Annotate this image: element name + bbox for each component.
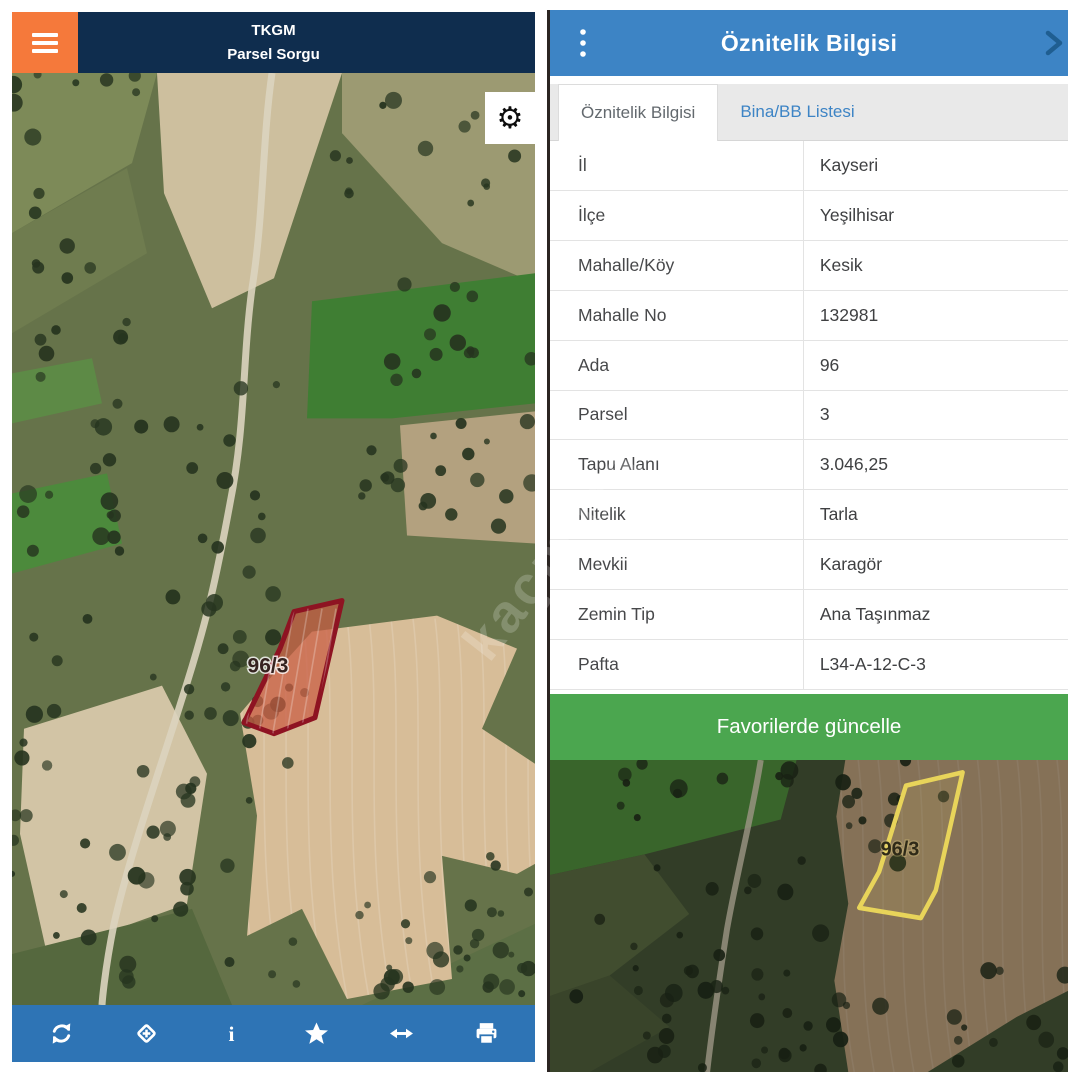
locate-icon bbox=[133, 1020, 160, 1047]
row-label: Tapu Alanı bbox=[550, 440, 804, 489]
preview-satellite-map[interactable]: 96/3 bbox=[550, 760, 1068, 1072]
left-header: TKGM Parsel Sorgu bbox=[12, 12, 535, 73]
row-label: Parsel bbox=[550, 391, 804, 440]
row-label: İlçe bbox=[550, 191, 804, 240]
row-label: Mahalle/Köy bbox=[550, 241, 804, 290]
row-value: 132981 bbox=[804, 305, 1068, 326]
table-row[interactable]: Ada96 bbox=[550, 341, 1068, 391]
row-label: İl bbox=[550, 141, 804, 190]
header-gap bbox=[550, 76, 1068, 84]
right-header: Öznitelik Bilgisi bbox=[550, 10, 1068, 76]
table-row[interactable]: NitelikTarla bbox=[550, 490, 1068, 540]
app-title-line2: Parsel Sorgu bbox=[227, 43, 320, 66]
table-row[interactable]: Mahalle/KöyKesik bbox=[550, 241, 1068, 291]
satellite-map-canvas[interactable]: 96/3 bbox=[12, 73, 535, 1005]
table-row[interactable]: İlçeYeşilhisar bbox=[550, 191, 1068, 241]
table-row[interactable]: Zemin TipAna Taşınmaz bbox=[550, 590, 1068, 640]
svg-text:i: i bbox=[228, 1022, 234, 1046]
row-label: Zemin Tip bbox=[550, 590, 804, 639]
attribute-info-panel: Öznitelik Bilgisi Öznitelik Bilgisi Bina… bbox=[547, 10, 1068, 1072]
tab-oznitelik-bilgisi[interactable]: Öznitelik Bilgisi bbox=[558, 84, 718, 141]
measure-button[interactable] bbox=[384, 1017, 418, 1051]
horizontal-arrows-icon bbox=[388, 1020, 415, 1047]
update-favorites-button[interactable]: Favorilerde güncelle bbox=[550, 694, 1068, 760]
hamburger-menu-button[interactable] bbox=[12, 12, 78, 73]
tab-bina-bb-listesi[interactable]: Bina/BB Listesi bbox=[718, 84, 876, 140]
print-button[interactable] bbox=[469, 1017, 503, 1051]
parcel-label: 96/3 bbox=[881, 838, 920, 860]
star-icon bbox=[303, 1020, 330, 1047]
row-value: Karagör bbox=[804, 554, 1068, 575]
overflow-menu-button[interactable] bbox=[566, 10, 600, 76]
row-value: Kesik bbox=[804, 255, 1068, 276]
parcel-label: 96/3 bbox=[248, 655, 289, 678]
refresh-button[interactable] bbox=[44, 1017, 78, 1051]
printer-icon bbox=[473, 1020, 500, 1047]
collapse-panel-button[interactable] bbox=[1044, 10, 1072, 76]
row-value: Ana Taşınmaz bbox=[804, 604, 1068, 625]
preview-map-canvas[interactable]: 96/3 bbox=[550, 760, 1068, 1072]
row-label: Pafta bbox=[550, 640, 804, 689]
row-value: Yeşilhisar bbox=[804, 205, 1068, 226]
row-label: Ada bbox=[550, 341, 804, 390]
row-value: Kayseri bbox=[804, 155, 1068, 176]
table-row[interactable]: Mahalle No132981 bbox=[550, 291, 1068, 341]
chevron-right-icon bbox=[1044, 30, 1066, 56]
row-value: 96 bbox=[804, 355, 1068, 376]
attribute-table: İlKayseriİlçeYeşilhisarMahalle/KöyKesikM… bbox=[550, 141, 1068, 690]
info-button[interactable]: i bbox=[214, 1017, 248, 1051]
row-value: 3.046,25 bbox=[804, 454, 1068, 475]
row-value: Tarla bbox=[804, 504, 1068, 525]
row-label: Nitelik bbox=[550, 490, 804, 539]
map-viewer-panel: TKGM Parsel Sorgu bbox=[12, 12, 535, 1062]
table-row[interactable]: İlKayseri bbox=[550, 141, 1068, 191]
table-row[interactable]: PaftaL34-A-12-C-3 bbox=[550, 640, 1068, 690]
vertical-dots-icon bbox=[579, 28, 587, 58]
favorite-button[interactable] bbox=[299, 1017, 333, 1051]
info-icon: i bbox=[218, 1020, 245, 1047]
panel-title: Öznitelik Bilgisi bbox=[721, 30, 897, 57]
row-value: 3 bbox=[804, 404, 1068, 425]
locate-button[interactable] bbox=[129, 1017, 163, 1051]
table-row[interactable]: Parsel3 bbox=[550, 391, 1068, 441]
satellite-map[interactable]: 96/3 ⚙ bbox=[12, 73, 535, 1005]
tab-bar: Öznitelik Bilgisi Bina/BB Listesi bbox=[550, 84, 1068, 141]
table-row[interactable]: Tapu Alanı3.046,25 bbox=[550, 440, 1068, 490]
row-value: L34-A-12-C-3 bbox=[804, 654, 1068, 675]
map-toolbar: i bbox=[12, 1005, 535, 1062]
row-label: Mahalle No bbox=[550, 291, 804, 340]
map-settings-button[interactable]: ⚙ bbox=[485, 92, 535, 144]
row-label: Mevkii bbox=[550, 540, 804, 589]
app-title: TKGM Parsel Sorgu bbox=[12, 12, 535, 73]
refresh-icon bbox=[48, 1020, 75, 1047]
gear-icon: ⚙ bbox=[497, 101, 524, 136]
hamburger-icon bbox=[32, 33, 58, 37]
app-title-line1: TKGM bbox=[251, 19, 295, 42]
table-row[interactable]: MevkiiKaragör bbox=[550, 540, 1068, 590]
